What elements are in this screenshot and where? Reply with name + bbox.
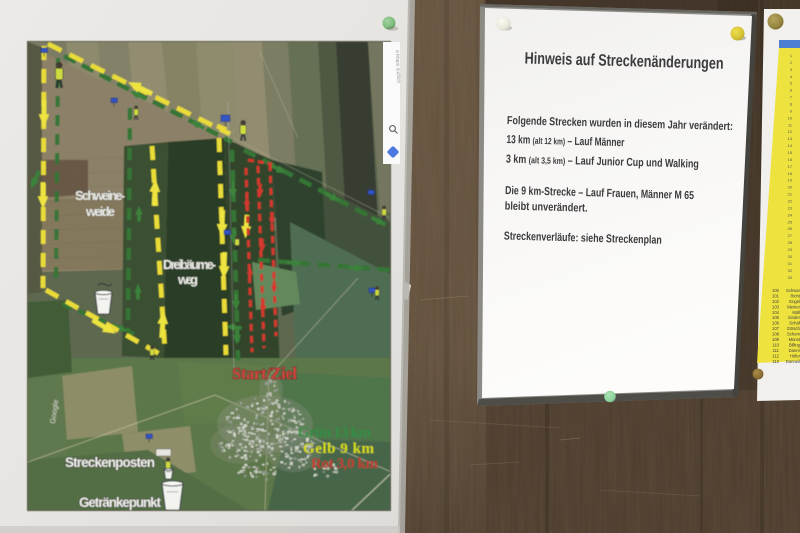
svg-text:Danneil: Danneil	[786, 359, 800, 364]
svg-text:3: 3	[790, 67, 792, 72]
svg-text:21: 21	[788, 192, 792, 197]
svg-text:105: 105	[772, 315, 780, 320]
svg-text:2: 2	[790, 60, 792, 65]
svg-text:8: 8	[790, 102, 792, 107]
svg-text:29: 29	[788, 247, 792, 252]
svg-text:a Maps südlich: a Maps südlich	[394, 50, 401, 84]
svg-text:104: 104	[772, 310, 780, 315]
svg-text:109: 109	[772, 337, 780, 342]
svg-text:5: 5	[790, 81, 792, 86]
svg-text:26: 26	[788, 226, 792, 231]
svg-text:1: 1	[790, 53, 792, 58]
svg-text:Richt: Richt	[790, 293, 800, 298]
svg-text:Schwar: Schwar	[786, 288, 800, 293]
svg-text:18: 18	[788, 171, 792, 176]
svg-text:Engel: Engel	[789, 299, 800, 304]
svg-text:Billing: Billing	[789, 343, 800, 348]
svg-text:Sinder: Sinder	[788, 315, 800, 320]
svg-text:16: 16	[788, 157, 792, 162]
svg-text:28: 28	[788, 240, 792, 245]
svg-text:108: 108	[772, 332, 780, 337]
svg-text:9: 9	[790, 108, 792, 113]
svg-text:Meiner: Meiner	[787, 304, 800, 309]
svg-text:112: 112	[772, 353, 779, 358]
svg-text:6: 6	[790, 88, 792, 93]
svg-text:100: 100	[772, 288, 780, 293]
svg-text:Schum: Schum	[787, 332, 800, 337]
svg-text:22: 22	[788, 199, 792, 204]
svg-text:17: 17	[788, 164, 792, 169]
svg-text:12: 12	[788, 129, 792, 134]
svg-text:103: 103	[772, 304, 780, 309]
svg-text:19: 19	[788, 178, 792, 183]
svg-text:111: 111	[773, 348, 780, 353]
svg-text:25: 25	[788, 219, 792, 224]
svg-text:107: 107	[772, 326, 780, 331]
svg-text:106: 106	[772, 321, 780, 326]
svg-text:11: 11	[788, 122, 792, 127]
svg-text:Müll: Müll	[792, 310, 800, 315]
svg-text:Schäf: Schäf	[789, 321, 800, 326]
svg-text:110: 110	[772, 343, 779, 348]
svg-text:15: 15	[788, 150, 792, 155]
svg-text:Münst: Münst	[789, 337, 800, 342]
svg-text:101: 101	[772, 293, 780, 298]
svg-text:7: 7	[790, 95, 792, 100]
svg-text:13: 13	[788, 136, 792, 141]
svg-text:102: 102	[772, 299, 780, 304]
svg-text:113: 113	[772, 359, 779, 364]
svg-text:33: 33	[788, 275, 792, 280]
svg-text:32: 32	[788, 268, 792, 273]
svg-text:31: 31	[788, 261, 792, 266]
svg-text:Dannr: Dannr	[789, 348, 800, 353]
svg-text:bleibt unverändert.: bleibt unverändert.	[504, 200, 587, 214]
svg-text:23: 23	[788, 206, 792, 211]
svg-text:Höfer: Höfer	[790, 353, 800, 358]
svg-text:27: 27	[788, 233, 792, 238]
svg-text:Götsch: Götsch	[787, 326, 800, 331]
